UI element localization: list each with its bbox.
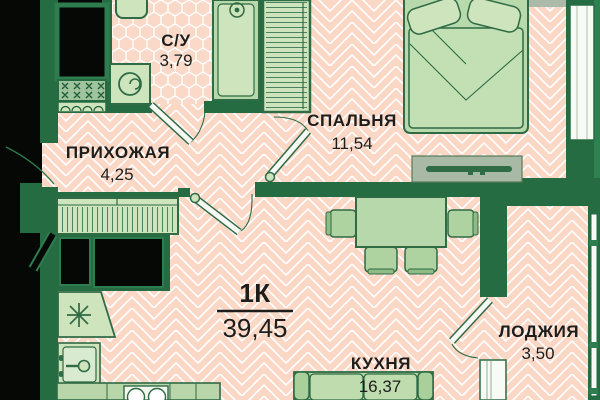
label-loggia: ЛОДЖИЯ — [499, 322, 579, 341]
burner-1 — [128, 389, 145, 400]
shower-tray — [218, 4, 254, 96]
sofa-armrest-left — [294, 372, 309, 400]
toilet — [116, 0, 147, 18]
sofa-armrest-right — [418, 372, 433, 400]
bed — [404, 0, 528, 133]
floor-plan-canvas: С/У 3,79 ПРИХОЖАЯ 4,25 СПАЛЬНЯ 11,54 КУХ… — [0, 0, 600, 400]
glazing-mullion-2 — [589, 342, 598, 348]
area-loggia: 3,50 — [521, 344, 554, 363]
vent-shaft-2 — [94, 238, 163, 287]
hallway-wardrobe-hangers — [59, 207, 176, 232]
wall-hall-ledge — [57, 192, 190, 197]
label-hallway: ПРИХОЖАЯ — [66, 143, 170, 162]
tv-icon — [426, 166, 512, 172]
burner-2 — [149, 389, 166, 400]
hallway-wardrobe — [57, 198, 178, 234]
chair-left — [330, 210, 356, 237]
glazing-mullion-1 — [589, 240, 598, 246]
bed-blanket — [409, 28, 523, 128]
wall-entry-block — [20, 183, 42, 233]
label-kitchen: КУХНЯ — [351, 354, 411, 373]
chair-bottom-2-back — [408, 269, 434, 274]
bedroom-wardrobe-hangers — [266, 2, 307, 109]
dining-table — [356, 197, 446, 247]
window-glass — [570, 5, 594, 140]
area-hallway: 4,25 — [100, 165, 133, 184]
chair-left-back — [326, 212, 331, 235]
bedroom-wardrobe — [263, 0, 310, 112]
balcony-door-frame — [480, 360, 506, 400]
tv-stand — [412, 156, 522, 182]
area-bathroom: 3,79 — [159, 51, 192, 70]
tv-foot-1 — [468, 172, 473, 175]
sofa-cushion-1 — [310, 374, 363, 400]
wall-main-horizontal — [255, 182, 485, 197]
living-door-hinge — [266, 173, 275, 182]
faucet-knob-2 — [59, 371, 63, 377]
area-kitchen: 16,37 — [359, 377, 402, 396]
chair-right-back — [473, 212, 478, 235]
elevator-shaft — [57, 5, 107, 79]
flat-type-label: 1К — [239, 278, 270, 308]
chair-bottom-1 — [365, 247, 397, 272]
faucet-knob-1 — [59, 355, 63, 361]
total-area-label: 39,45 — [222, 313, 287, 343]
shower-drain-dot — [235, 8, 240, 13]
wall-left-lower — [40, 187, 58, 400]
glazing-mullion-3 — [589, 388, 598, 394]
label-bathroom: С/У — [161, 31, 190, 50]
tv-foot-2 — [480, 172, 485, 175]
star-symbol-icon — [67, 303, 91, 327]
wall-stub — [178, 188, 190, 197]
faucet-icon — [79, 361, 90, 372]
exterior-strip — [594, 0, 600, 180]
kitchen-door-hinge — [191, 194, 200, 203]
chair-bottom-2 — [405, 247, 437, 272]
chair-right — [448, 210, 474, 237]
floor-plan: С/У 3,79 ПРИХОЖАЯ 4,25 СПАЛЬНЯ 11,54 КУХ… — [0, 0, 600, 400]
bedroom-window — [570, 5, 594, 140]
area-bedroom: 11,54 — [331, 134, 372, 153]
vent-shaft-1 — [60, 238, 90, 285]
chair-bottom-1-back — [368, 269, 394, 274]
wall-kitchen-loggia — [480, 187, 507, 297]
label-bedroom: СПАЛЬНЯ — [307, 111, 397, 130]
